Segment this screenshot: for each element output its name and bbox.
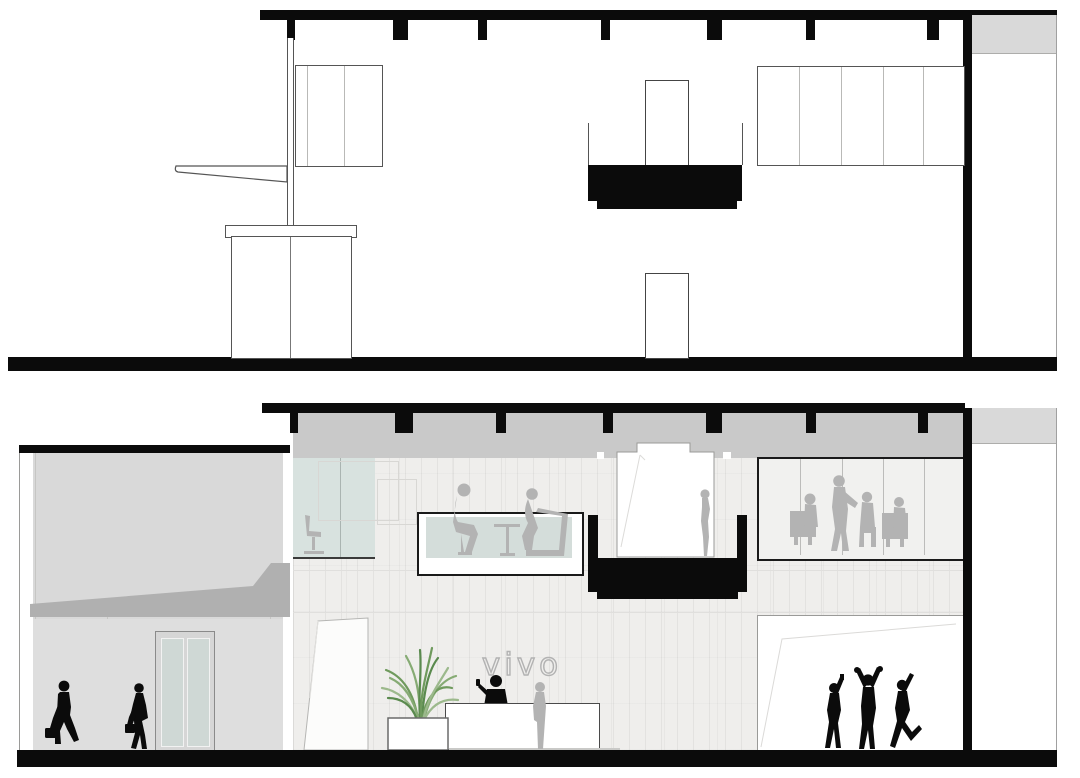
black-ceiling-fixture — [588, 558, 747, 592]
receptionist-silhouette — [474, 674, 516, 706]
ceiling-beam — [707, 20, 722, 40]
cabinet-joint — [923, 67, 924, 165]
ceiling-beam — [290, 413, 298, 433]
upper-section-drawing — [0, 0, 1080, 389]
walking-woman-silhouette — [122, 683, 156, 751]
fixture-hanger — [588, 123, 589, 165]
ceiling-beam — [601, 20, 610, 40]
walking-man-silhouette — [44, 680, 82, 751]
office-chair-silhouette — [297, 515, 329, 557]
black-ceiling-fixture-step — [597, 592, 738, 599]
ceiling-beam — [393, 20, 408, 40]
ceiling-beam — [395, 413, 413, 433]
cabinet-joint — [841, 67, 842, 165]
ceiling-beam — [496, 413, 506, 433]
side-wall — [963, 408, 972, 765]
lounge-people-silhouette — [428, 478, 570, 558]
ceiling-beam — [927, 20, 939, 40]
ceiling-slab — [262, 403, 965, 413]
floor-duct — [645, 273, 689, 359]
angled-display-panel — [300, 616, 372, 750]
entrance-door — [155, 631, 215, 752]
side-wall — [963, 12, 972, 357]
black-ceiling-fixture-step — [597, 201, 737, 209]
cabinet-joint — [344, 66, 345, 166]
ceiling-beam — [603, 413, 613, 433]
wall-corner-fill — [972, 15, 1057, 54]
counter-joint — [290, 237, 291, 358]
ceiling-duct — [645, 80, 689, 167]
section-drawing-canvas: vivo — [0, 0, 1080, 778]
meeting-group-silhouette — [786, 475, 928, 555]
ceiling-beam — [806, 20, 815, 40]
floor-slab — [8, 357, 1057, 371]
drawing-left-boundary — [19, 453, 20, 750]
floor-slab — [17, 750, 1057, 767]
ceiling-beam — [706, 413, 722, 433]
ceiling-slab — [260, 10, 1057, 20]
ceiling-beam — [806, 413, 816, 433]
ceiling-beam — [478, 20, 487, 40]
counter-body — [231, 236, 352, 359]
column — [287, 38, 294, 226]
potted-plant — [380, 632, 460, 752]
standing-person-silhouette — [695, 489, 715, 557]
ceiling-beam — [918, 413, 928, 433]
customer-silhouette — [526, 682, 554, 750]
entrance-canopy — [28, 559, 292, 619]
drawing-right-boundary — [1056, 408, 1057, 765]
ceiling-beam — [287, 20, 295, 40]
low-building-roof — [19, 445, 290, 453]
tile-joint-line — [293, 612, 965, 613]
reception-desk — [445, 703, 600, 750]
door-pane — [187, 638, 210, 747]
fixture-hanger — [742, 123, 743, 165]
cabinet-joint — [883, 67, 884, 165]
cabinet-joint — [307, 66, 308, 166]
door-pane — [161, 638, 184, 747]
lower-section-drawing: vivo — [0, 389, 1080, 778]
drawing-right-boundary — [1056, 15, 1057, 357]
black-ceiling-fixture — [588, 165, 742, 201]
wall-cabinet — [295, 65, 383, 167]
cantilever-shelf — [170, 160, 292, 186]
wall-corner-fill — [972, 408, 1057, 444]
wall-panel-outline — [377, 479, 417, 525]
wall-cabinet-wide — [757, 66, 965, 166]
dancing-people-silhouette — [820, 666, 922, 750]
cabinet-joint — [799, 67, 800, 165]
